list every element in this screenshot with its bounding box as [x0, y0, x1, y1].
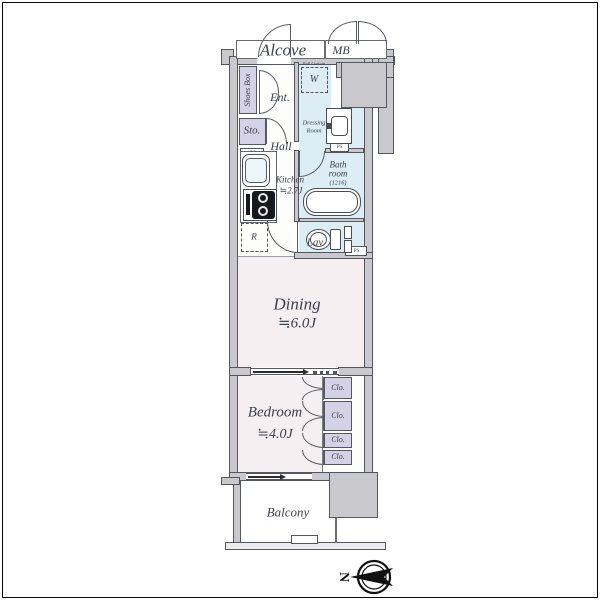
kitchen-sink-bowl [245, 158, 267, 183]
stove-handle [246, 194, 250, 215]
pipe-shaft-3-label: PS [353, 249, 359, 254]
bedroom-window-arrow [280, 474, 286, 480]
meter-box-label: MB [332, 44, 349, 56]
dining-label: Dining [273, 296, 320, 313]
structure-block-balcony-corner [329, 472, 378, 518]
structure-block-core [341, 62, 387, 108]
toilet-tank [330, 229, 341, 250]
balcony-partition-line [335, 518, 337, 543]
floor-plan: PS PS PS [0, 0, 600, 600]
closet-1-label: Clo. [331, 384, 345, 392]
wall-bath-lav-divider [299, 218, 364, 222]
storage-label: Sto. [244, 126, 261, 137]
refrigerator-label: R [251, 233, 257, 242]
dining-size-label: ≒6.0J [278, 317, 316, 332]
alcove-label: Alcove [260, 42, 306, 59]
balcony-wall-left [233, 481, 241, 543]
washbasin-bowl [331, 116, 348, 136]
bedroom-size-label: ≒4.0J [257, 428, 292, 442]
dressing-room-label-line2: Room [307, 128, 322, 134]
partition-pocket-dots [313, 371, 337, 374]
kitchen-size-label: ≒2.7J [280, 187, 303, 196]
stove-burner-2 [258, 206, 268, 216]
bedroom-window-panel [248, 476, 280, 478]
dressing-room-label-line1: Dressing [303, 120, 326, 126]
balcony-rail-step [291, 535, 318, 544]
bathtub-inner [306, 191, 358, 213]
stove-burner-1 [258, 193, 268, 203]
closet-4-label: Clo. [331, 453, 345, 461]
lavatory-label: Lav. [307, 238, 325, 249]
bathroom-size-label: (1216) [329, 180, 346, 186]
closet-2-label: Clo. [331, 412, 345, 420]
balcony-stub-left [221, 477, 240, 485]
wall-wet-vertical-upper [294, 62, 299, 142]
entrance-label: Ent. [270, 91, 290, 103]
wall-partition-right-stub [338, 367, 373, 376]
wall-right [364, 56, 373, 481]
pipe-shaft-2-label: PS [337, 145, 343, 150]
washer-label: W [310, 75, 318, 85]
bedroom-window [246, 473, 312, 480]
shoes-box-label: Shoes Box [244, 73, 252, 106]
kitchen-label: Kitchen [276, 176, 304, 185]
bathroom-label-line2: room [329, 170, 348, 179]
closet-3-label: Clo. [331, 436, 345, 444]
washer-note-label: Roll Curtain [303, 62, 325, 66]
washbasin-tap [327, 123, 332, 129]
hall-label: Hall [270, 140, 291, 152]
balcony-label: Balcony [267, 506, 310, 519]
wall-left [229, 56, 238, 481]
wall-partition-left-stub [229, 367, 251, 376]
lavatory-cabinet-bottom [344, 240, 352, 253]
partition-sliding-track [251, 368, 339, 375]
partition-slide-panel [253, 371, 303, 373]
partition-slide-arrow [303, 369, 309, 375]
bedroom-label: Bedroom [248, 406, 302, 421]
compass-north-label: N [336, 572, 350, 582]
lavatory-cabinet-top [344, 226, 352, 239]
